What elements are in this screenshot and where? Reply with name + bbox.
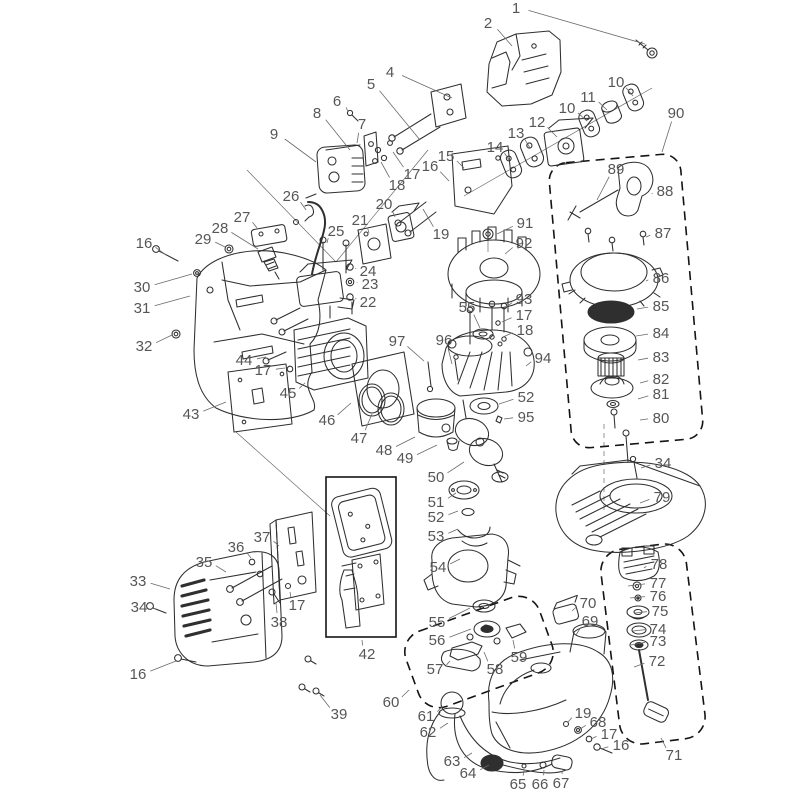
leader-line-85 xyxy=(637,307,648,309)
leader-line-43 xyxy=(203,402,226,411)
leader-line-42 xyxy=(362,640,363,646)
shim-washer xyxy=(462,509,474,516)
part-number-97: 97 xyxy=(389,333,406,350)
part-number-85: 85 xyxy=(653,298,670,315)
leader-line-54 xyxy=(450,559,460,564)
part-number-71: 71 xyxy=(666,747,683,764)
leader-line-97 xyxy=(407,346,424,361)
part-number-22: 22 xyxy=(360,294,377,311)
leader-line-68 xyxy=(580,725,586,729)
leader-line-83 xyxy=(638,358,648,360)
part-number-9: 9 xyxy=(270,126,278,143)
part-number-42: 42 xyxy=(359,646,376,663)
part-number-17: 17 xyxy=(404,166,421,183)
leader-line-4 xyxy=(402,76,452,99)
leader-line-81 xyxy=(638,396,648,399)
part-number-75: 75 xyxy=(652,603,669,620)
part-number-43: 43 xyxy=(183,406,200,423)
leader-line-19 xyxy=(423,209,433,227)
leader-line-20 xyxy=(392,211,395,217)
recoil-spring xyxy=(598,353,624,376)
part-number-27: 27 xyxy=(234,209,251,226)
air-filter-cover xyxy=(330,487,394,559)
leader-line-84 xyxy=(636,334,648,336)
part-number-90: 90 xyxy=(668,105,685,122)
leader-line-18 xyxy=(503,333,513,337)
part-number-72: 72 xyxy=(649,653,666,670)
leader-line-59 xyxy=(513,640,515,649)
leader-line-16 xyxy=(601,747,608,749)
leader-line-52 xyxy=(449,511,459,515)
part-number-86: 86 xyxy=(653,270,670,287)
starter-screws xyxy=(585,228,646,251)
part-number-38: 38 xyxy=(271,614,288,631)
leader-line-27 xyxy=(253,222,258,228)
part-number-44: 44 xyxy=(236,352,253,369)
leader-line-9 xyxy=(285,139,316,162)
leader-line-16 xyxy=(150,661,176,671)
part-number-16: 16 xyxy=(136,235,153,252)
leader-line-5 xyxy=(380,91,420,140)
part-number-6: 6 xyxy=(333,93,341,110)
part-number-20: 20 xyxy=(376,196,393,213)
leader-line-48 xyxy=(396,437,415,447)
starter-center-screw xyxy=(611,409,617,428)
part-number-82: 82 xyxy=(653,371,670,388)
part-number-77: 77 xyxy=(650,575,667,592)
intake-bolts xyxy=(395,202,436,236)
exploded-parts-diagram: 1245687910111012131415161718902627202125… xyxy=(0,0,800,800)
part-number-11: 11 xyxy=(580,89,596,106)
leader-line-35 xyxy=(216,566,226,572)
part-number-62: 62 xyxy=(420,724,437,741)
part-number-32: 32 xyxy=(136,338,153,355)
part-number-4: 4 xyxy=(386,64,394,81)
part-number-23: 23 xyxy=(362,276,379,293)
leader-line-79 xyxy=(640,499,650,503)
leader-line-75 xyxy=(635,612,647,613)
air-filter-box-42 xyxy=(326,477,396,637)
starter-rope xyxy=(568,190,618,220)
part-number-34: 34 xyxy=(655,455,672,472)
part-number-59: 59 xyxy=(511,649,528,666)
part-number-54: 54 xyxy=(430,559,447,576)
leader-line-17 xyxy=(502,318,512,322)
part-number-96: 96 xyxy=(436,332,453,349)
part-number-10: 10 xyxy=(608,74,625,91)
part-number-70: 70 xyxy=(580,595,597,612)
leader-line-95 xyxy=(504,418,513,419)
leader-line-16 xyxy=(155,247,166,255)
part-number-55: 55 xyxy=(459,299,476,316)
part-number-13: 13 xyxy=(508,125,525,142)
part-number-2: 2 xyxy=(484,15,492,32)
leader-line-80 xyxy=(640,419,648,420)
part-number-17: 17 xyxy=(289,597,306,614)
part-number-18: 18 xyxy=(517,322,534,339)
leader-line-74 xyxy=(633,630,645,631)
part-number-12: 12 xyxy=(529,114,546,131)
part-number-14: 14 xyxy=(487,139,504,156)
leader-line-31 xyxy=(155,296,190,306)
part-number-64: 64 xyxy=(460,765,477,782)
part-number-69: 69 xyxy=(582,613,599,630)
leader-line-62 xyxy=(440,723,448,728)
part-number-66: 66 xyxy=(532,776,549,793)
part-number-55: 55 xyxy=(429,614,446,631)
side-cover-screws xyxy=(147,603,196,662)
starter-cam xyxy=(591,376,633,398)
part-number-92: 92 xyxy=(516,235,533,252)
leader-line-17 xyxy=(276,368,285,369)
part-number-74: 74 xyxy=(650,621,667,638)
fuel-lines xyxy=(427,712,573,780)
starter-pulley xyxy=(588,301,634,323)
part-number-94: 94 xyxy=(535,350,552,367)
part-number-1: 1 xyxy=(512,0,520,17)
leader-line-60 xyxy=(402,690,409,697)
leader-line-24 xyxy=(355,268,356,269)
part-number-45: 45 xyxy=(280,385,297,402)
part-number-34: 34 xyxy=(131,599,148,616)
part-number-65: 65 xyxy=(510,776,527,793)
mounting-bracket xyxy=(270,512,316,604)
part-number-78: 78 xyxy=(651,556,668,573)
part-number-21: 21 xyxy=(352,212,369,229)
part-number-56: 56 xyxy=(429,632,446,649)
part-number-28: 28 xyxy=(212,220,229,237)
part-number-31: 31 xyxy=(134,300,151,317)
part-number-16: 16 xyxy=(422,158,439,175)
leader-line-32 xyxy=(156,335,172,343)
piston-pin xyxy=(447,438,459,451)
piston-rings xyxy=(359,384,404,425)
leader-line-65 xyxy=(523,770,524,776)
leader-line-50 xyxy=(448,462,465,473)
part-number-17: 17 xyxy=(255,362,272,379)
cap-small-parts xyxy=(627,582,651,650)
part-number-60: 60 xyxy=(383,694,400,711)
part-number-46: 46 xyxy=(319,412,336,429)
leader-line-16 xyxy=(440,172,449,181)
part-number-39: 39 xyxy=(331,706,348,723)
leader-line-37 xyxy=(274,541,280,546)
leader-line-29 xyxy=(215,242,225,247)
leader-line-86 xyxy=(646,280,648,281)
leader-line-49 xyxy=(417,445,437,455)
part-number-47: 47 xyxy=(351,430,368,447)
cylinder-top-cover xyxy=(487,31,561,106)
leader-line-58 xyxy=(484,652,488,661)
wire-clip xyxy=(305,205,314,221)
part-number-30: 30 xyxy=(134,279,151,296)
parts-diagram-page: 1245687910111012131415161718902627202125… xyxy=(0,0,800,800)
heat-shield-plate xyxy=(452,146,512,214)
ignition-coil xyxy=(296,194,354,309)
leader-line-90 xyxy=(662,122,672,153)
main-bearing xyxy=(449,481,479,499)
part-number-80: 80 xyxy=(653,410,670,427)
part-number-5: 5 xyxy=(367,76,375,93)
leader-line-39 xyxy=(320,695,330,708)
leader-line-82 xyxy=(640,381,648,383)
leader-line-30 xyxy=(155,274,192,285)
part-number-81: 81 xyxy=(653,386,670,403)
part-number-29: 29 xyxy=(195,231,212,248)
leader-line-38 xyxy=(276,603,277,613)
leader-line-56 xyxy=(449,629,471,637)
leader-line-8 xyxy=(326,120,350,150)
leader-line-92 xyxy=(505,248,513,255)
primer-bulb xyxy=(439,692,465,718)
part-number-79: 79 xyxy=(654,489,671,506)
part-number-37: 37 xyxy=(254,529,271,546)
leader-line-6 xyxy=(346,107,348,112)
part-number-26: 26 xyxy=(283,188,300,205)
part-number-8: 8 xyxy=(313,105,321,122)
part-number-25: 25 xyxy=(328,223,345,240)
part-number-36: 36 xyxy=(228,539,245,556)
part-number-93: 93 xyxy=(516,291,533,308)
leader-line-70 xyxy=(572,607,576,611)
leader-line-53 xyxy=(448,529,458,533)
air-filter-plate xyxy=(352,554,384,610)
part-number-16: 16 xyxy=(130,666,147,683)
part-number-67: 67 xyxy=(553,775,570,792)
leader-line-55 xyxy=(474,315,480,328)
tank-grommet-block xyxy=(550,595,583,624)
leader-line-57 xyxy=(447,661,451,665)
part-number-83: 83 xyxy=(653,349,670,366)
carburetor xyxy=(544,118,593,166)
part-number-33: 33 xyxy=(130,573,147,590)
part-number-53: 53 xyxy=(428,528,445,545)
leader-line-28 xyxy=(231,232,258,249)
leader-line-33 xyxy=(151,583,170,589)
part-number-48: 48 xyxy=(376,442,393,459)
part-number-50: 50 xyxy=(428,469,445,486)
part-number-63: 63 xyxy=(444,753,461,770)
leader-line-47 xyxy=(365,414,372,430)
bracket-bolts xyxy=(227,559,291,605)
part-number-15: 15 xyxy=(438,148,455,165)
part-number-57: 57 xyxy=(427,661,444,678)
intake-gasket-plate xyxy=(358,224,391,264)
crankshaft xyxy=(452,400,508,482)
part-number-19: 19 xyxy=(433,226,450,243)
muffler xyxy=(316,132,378,194)
cylinder-gasket xyxy=(352,352,414,426)
part-number-52: 52 xyxy=(428,509,445,526)
intake-elbow xyxy=(340,563,360,628)
leader-line-94 xyxy=(526,362,531,366)
leader-line-78 xyxy=(644,566,646,568)
shroud-screws xyxy=(623,430,637,478)
leader-line-52 xyxy=(499,399,513,404)
part-number-10: 10 xyxy=(559,100,576,117)
leader-line-7 xyxy=(357,133,359,143)
part-number-58: 58 xyxy=(487,661,504,678)
leader-line-87 xyxy=(646,235,650,237)
side-cover xyxy=(174,552,282,666)
fan-cover-shroud xyxy=(556,460,706,552)
part-number-89: 89 xyxy=(608,161,625,178)
part-number-16: 16 xyxy=(613,737,630,754)
part-number-49: 49 xyxy=(397,450,414,467)
part-number-52: 52 xyxy=(518,389,535,406)
small-screws-39 xyxy=(299,656,324,696)
muffler-cover-plate xyxy=(431,84,466,127)
leader-line-18 xyxy=(381,162,390,178)
leader-line-46 xyxy=(338,403,351,415)
leader-line-2 xyxy=(497,29,512,46)
part-number-7: 7 xyxy=(358,116,366,133)
part-number-95: 95 xyxy=(518,409,535,426)
shroud-fasteners xyxy=(153,245,233,338)
rope-reel xyxy=(584,327,636,361)
leader-line-19 xyxy=(568,718,572,722)
part-number-84: 84 xyxy=(653,325,670,342)
part-number-61: 61 xyxy=(418,708,435,725)
leader-line-1 xyxy=(529,10,646,44)
part-number-87: 87 xyxy=(655,225,672,242)
part-number-35: 35 xyxy=(196,554,213,571)
part-number-88: 88 xyxy=(657,183,674,200)
part-number-91: 91 xyxy=(517,215,534,232)
part-number-18: 18 xyxy=(389,177,406,194)
piston xyxy=(417,399,455,437)
starter-washer xyxy=(607,401,619,408)
starter-group-box-90 xyxy=(548,153,704,449)
